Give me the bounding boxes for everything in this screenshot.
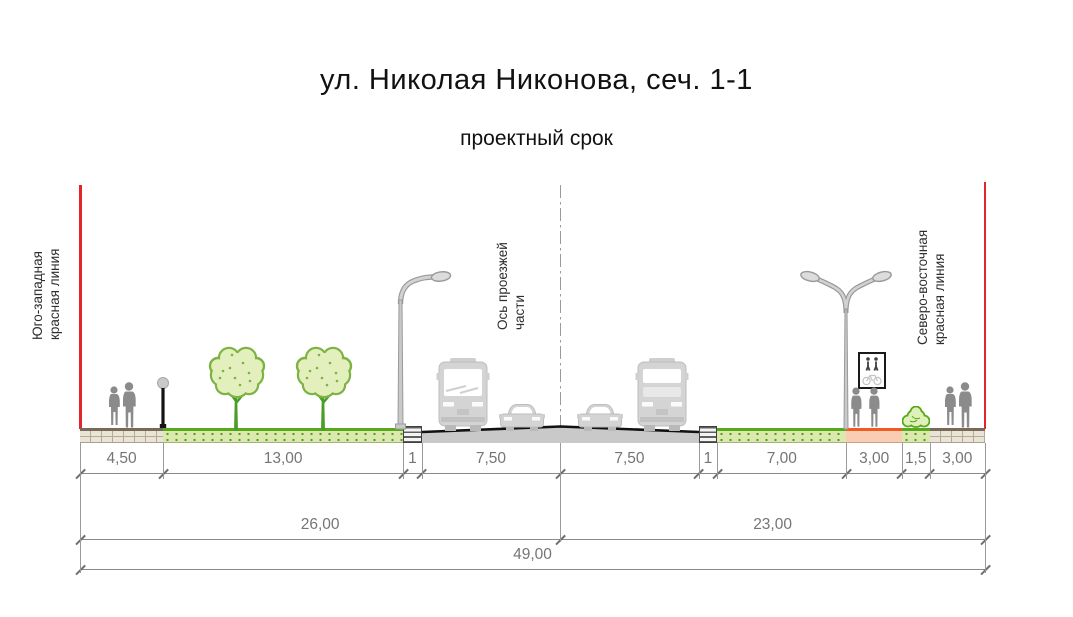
dimension-value: 7,50	[422, 450, 561, 468]
section-segment-curb	[699, 426, 717, 443]
car	[577, 403, 623, 431]
dimension-value: 49,00	[80, 546, 985, 564]
extension-line	[985, 479, 986, 573]
bus	[635, 357, 689, 431]
dimension-boundary-line	[163, 443, 164, 479]
car	[499, 403, 545, 431]
dimension-boundary-line	[699, 443, 700, 479]
ped-bike-path-sign	[858, 352, 886, 389]
right-red-line-label: Северо-восточная красная линия	[914, 185, 948, 345]
dimension-line	[80, 539, 985, 540]
section-segment-green	[163, 428, 403, 443]
dimension-value: 7,50	[560, 450, 699, 468]
dimension-boundary-line	[422, 443, 423, 479]
roadway-axis-label: Ось проезжей части	[494, 190, 528, 330]
dimension-value: 3,00	[930, 450, 985, 468]
dimension-value: 3,00	[846, 450, 901, 468]
right-red-line	[984, 182, 987, 429]
section-segment-green	[902, 428, 930, 443]
shrub	[902, 406, 930, 429]
extension-line	[80, 479, 81, 573]
left-red-line-label: Юго-западная красная линия	[29, 192, 63, 340]
dimension-value: 1,5	[902, 450, 930, 468]
dimension-boundary-line	[902, 443, 903, 479]
left-red-line	[79, 185, 82, 429]
pedestrian	[866, 387, 882, 429]
dimension-value: 1	[403, 450, 421, 468]
section-segment-sidewalk	[80, 428, 163, 443]
pedestrian-couple	[103, 381, 143, 429]
bus	[436, 357, 490, 431]
dimension-value: 13,00	[163, 450, 403, 468]
pedestrian-couple	[939, 381, 979, 429]
dimension-line	[80, 569, 985, 570]
dimension-value: 4,50	[80, 450, 163, 468]
dimension-value: 26,00	[80, 516, 560, 534]
dimension-boundary-line	[846, 443, 847, 479]
roadway-axis-line	[560, 185, 562, 443]
tree	[292, 343, 356, 433]
road-cross-section-drawing: ул. Николая Никонова, сеч. 1-1 проектный…	[0, 0, 1073, 617]
dimension-line	[80, 473, 985, 474]
dimension-boundary-line	[80, 443, 81, 479]
dimension-value: 7,00	[717, 450, 846, 468]
tree	[205, 343, 269, 433]
pedestrian	[848, 387, 864, 429]
pedestrian-lamp	[156, 377, 170, 429]
dimension-value: 23,00	[560, 516, 985, 534]
extension-line	[560, 446, 561, 542]
page-title: ул. Николая Никонова, сеч. 1-1	[0, 64, 1073, 97]
page-subtitle: проектный срок	[0, 127, 1073, 151]
dimension-boundary-line	[985, 443, 986, 479]
dimension-boundary-line	[930, 443, 931, 479]
section-segment-sidewalk	[930, 428, 985, 443]
dimension-boundary-line	[717, 443, 718, 479]
dimension-boundary-line	[403, 443, 404, 479]
dimension-value: 1	[699, 450, 717, 468]
